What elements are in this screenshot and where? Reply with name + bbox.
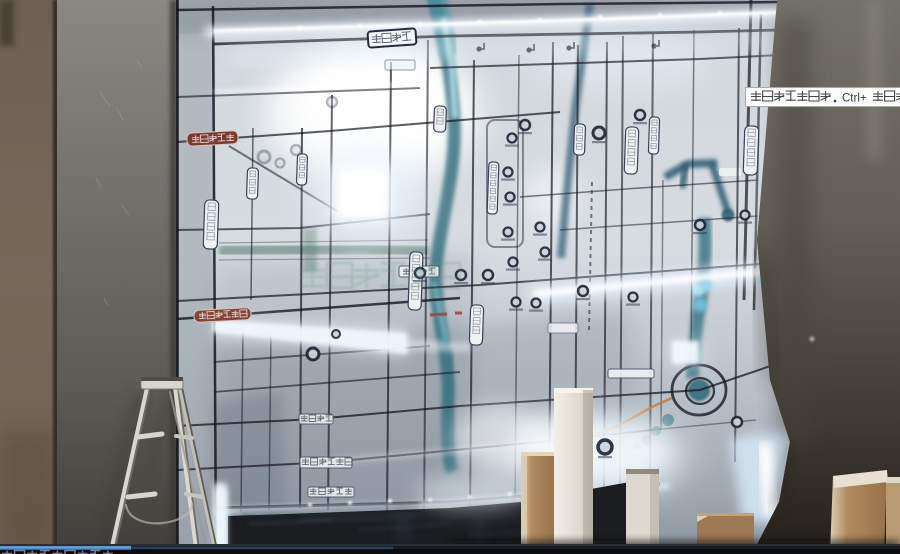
svg-text:Ctrl+: Ctrl+	[842, 93, 867, 105]
